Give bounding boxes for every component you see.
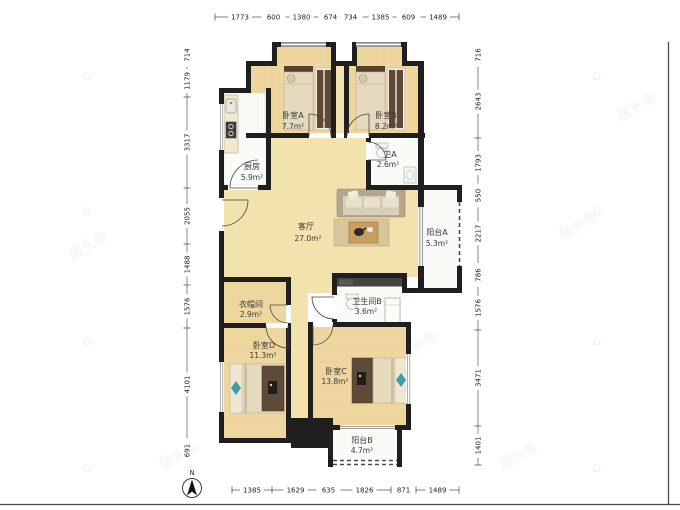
room-area-kitchen: 5.9m² [241, 173, 263, 182]
bed-icon [230, 364, 284, 413]
sink-icon [404, 167, 416, 183]
floor-plan-drawing: 居头条 居头条 居头条 居头条 居头条 居头条 居头条 居头条 ⌂⌂⌂⌂ ⌂⌂⌂… [0, 0, 680, 510]
dim-left: 2055 [184, 207, 192, 225]
north-compass-icon: N [183, 469, 202, 498]
dim-left: 1179 [184, 72, 192, 90]
dim-bottom: 871 [397, 487, 410, 495]
room-label-bedroom-b: 卧室B [375, 110, 397, 120]
room-area-bath-b: 3.6m² [355, 307, 377, 316]
dim-right: 2217 [475, 225, 483, 243]
dim-right: 786 [475, 268, 483, 282]
watermark-text: 居头条 [614, 89, 659, 125]
dim-bottom: 1826 [356, 487, 374, 495]
room-area-bedroom-c: 13.8m² [321, 377, 348, 386]
watermark-text: 居头条 [66, 228, 111, 264]
dim-top: 1385 [372, 14, 390, 22]
dim-right: 1401 [475, 437, 483, 455]
room-area-bedroom-d: 11.3m² [249, 351, 276, 360]
bed-icon [356, 66, 385, 130]
dim-top: 1380 [293, 14, 311, 22]
room-label-living: 客厅 [298, 221, 314, 231]
room-label-bedroom-c: 卧室C [325, 366, 347, 376]
dim-bottom: 1629 [287, 487, 305, 495]
sofa-icon [337, 189, 405, 217]
dim-left: 1488 [184, 256, 192, 274]
svg-text:⌂: ⌂ [82, 66, 92, 84]
floor-plan-page: 居头条 居头条 居头条 居头条 居头条 居头条 居头条 居头条 ⌂⌂⌂⌂ ⌂⌂⌂… [0, 0, 680, 510]
shower-icon [385, 298, 400, 325]
room-area-living: 27.0m² [294, 234, 321, 243]
dim-top: 600 [267, 14, 280, 22]
svg-text:⌂: ⌂ [592, 201, 602, 219]
room-area-bath-a: 2.6m² [377, 160, 399, 169]
dim-right: 716 [475, 48, 483, 62]
room-area-cloakroom: 2.9m² [240, 310, 262, 319]
dim-top: 609 [402, 14, 415, 22]
dim-top: 1773 [231, 14, 249, 22]
dim-left: 691 [184, 444, 192, 457]
dim-right: 1793 [475, 154, 483, 172]
dim-right: 550 [475, 189, 483, 202]
room-label-bath-a: 卫A [383, 150, 397, 159]
coffee-table-icon [334, 219, 389, 246]
dim-bottom: 1489 [429, 487, 447, 495]
dim-left: 3317 [184, 134, 192, 152]
watermark-text: 居头条 [496, 438, 541, 474]
svg-text:⌂: ⌂ [592, 331, 602, 349]
room-area-bedroom-a: 7.7m² [282, 122, 304, 131]
room-area-bedroom-b: 8.2m² [375, 122, 397, 131]
dim-right: 3471 [475, 369, 483, 387]
svg-text:⌂: ⌂ [592, 66, 602, 84]
dim-left: 1576 [184, 297, 192, 315]
bath-counter-icon [337, 278, 402, 287]
svg-text:⌂: ⌂ [82, 201, 92, 219]
room-label-bedroom-a: 卧室A [282, 110, 304, 120]
wardrobe-icon [387, 68, 405, 130]
dim-left: 4101 [184, 376, 192, 394]
compass-n-label: N [189, 469, 194, 477]
room-label-cloakroom: 衣帽间 [239, 299, 263, 309]
kitchen-counter-icon [224, 95, 238, 153]
dim-right: 2643 [475, 93, 483, 111]
room-area-balcony-a: 5.3m² [426, 239, 448, 248]
room-label-balcony-a: 阳台A [426, 227, 448, 237]
dim-right: 1576 [475, 299, 483, 317]
dim-top: 674 [324, 14, 338, 22]
svg-text:⌂: ⌂ [82, 458, 92, 476]
wardrobe-icon [315, 68, 333, 130]
svg-text:⌂: ⌂ [82, 331, 92, 349]
dim-bottom: 1385 [243, 487, 261, 495]
dim-left: 714 [184, 48, 192, 62]
room-label-bedroom-d: 卧室D [253, 340, 275, 350]
dim-top: 1489 [429, 14, 447, 22]
dim-top: 734 [344, 14, 358, 22]
room-label-bath-b: 卫生间B [352, 296, 382, 306]
room-label-balcony-b: 阳台B [351, 435, 373, 445]
room-area-balcony-b: 4.7m² [351, 446, 373, 455]
room-label-kitchen: 厨房 [244, 161, 260, 171]
dim-bottom: 635 [322, 487, 335, 495]
bed-icon [352, 358, 407, 403]
svg-text:⌂: ⌂ [592, 458, 602, 476]
